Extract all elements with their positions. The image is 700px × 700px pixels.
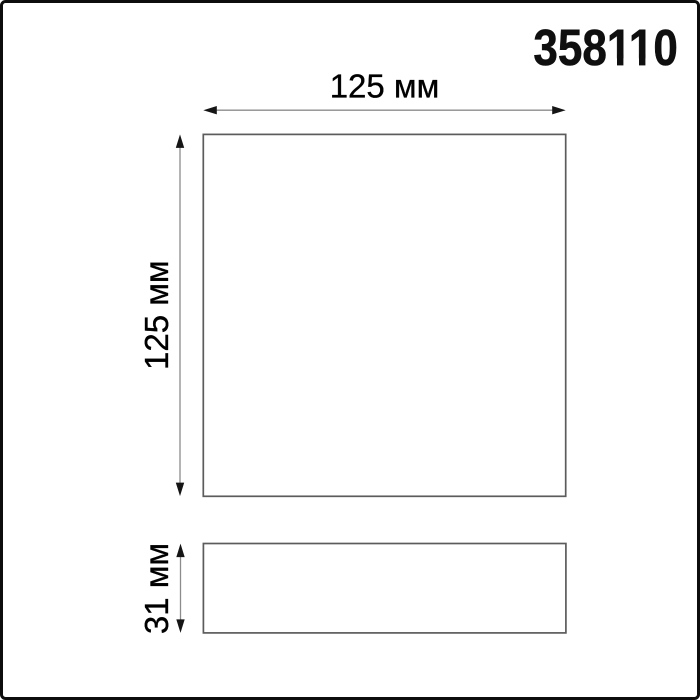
svg-text:125 мм: 125 мм: [138, 260, 175, 370]
svg-text:125 мм: 125 мм: [330, 68, 440, 105]
svg-text:31 мм: 31 мм: [138, 543, 175, 634]
svg-text:358110: 358110: [533, 20, 677, 77]
